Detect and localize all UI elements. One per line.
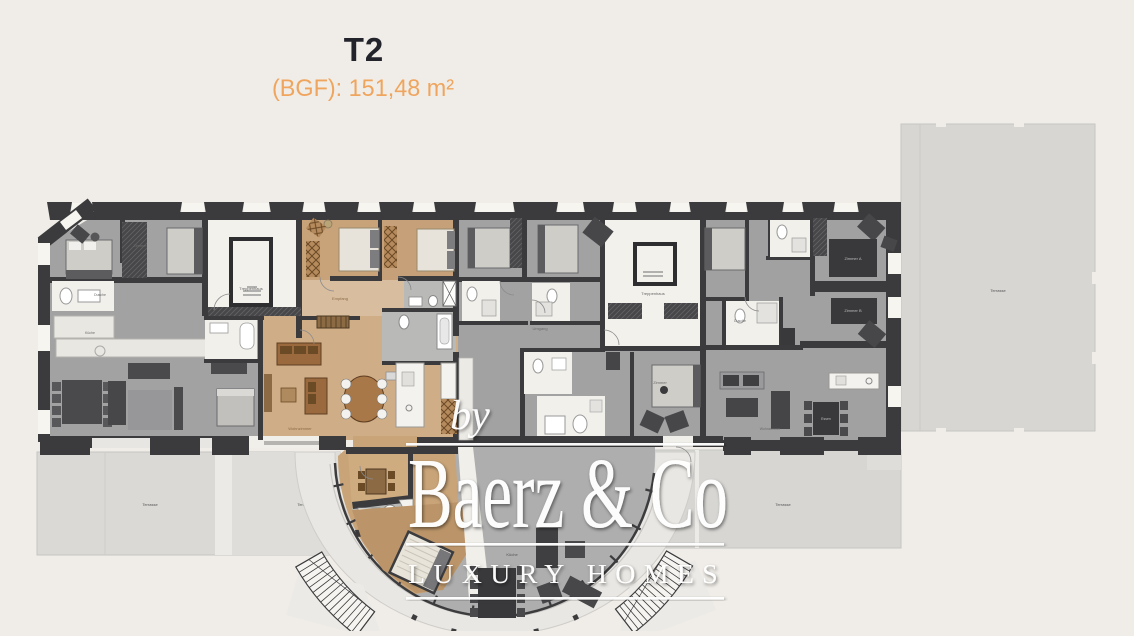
svg-text:Empfang: Empfang: [332, 296, 348, 301]
svg-text:Zimmer B: Zimmer B: [844, 308, 862, 313]
svg-text:Treppenhaus: Treppenhaus: [239, 286, 262, 291]
svg-text:Treppenhaus: Treppenhaus: [641, 291, 664, 296]
svg-text:Küche: Küche: [506, 552, 518, 557]
svg-text:Zimmer: Zimmer: [653, 380, 667, 385]
svg-text:Wohnzimmer: Wohnzimmer: [288, 426, 312, 431]
svg-text:Wohnzimmer: Wohnzimmer: [760, 427, 781, 431]
svg-text:Küche: Küche: [85, 331, 95, 335]
svg-text:Essen: Essen: [821, 417, 831, 421]
svg-text:Terrasse: Terrasse: [775, 502, 791, 507]
svg-text:T2: T2: [344, 31, 385, 68]
svg-text:LUXURY HOMES: LUXURY HOMES: [408, 559, 726, 589]
svg-text:by: by: [450, 393, 490, 439]
svg-text:Terrasse: Terrasse: [990, 288, 1006, 293]
svg-text:Dusche: Dusche: [94, 293, 106, 297]
svg-text:Umgang: Umgang: [532, 326, 547, 331]
svg-text:Terrasse: Terrasse: [142, 502, 158, 507]
svg-text:Zimmer A: Zimmer A: [844, 256, 861, 261]
svg-text:Baerz & Co: Baerz & Co: [408, 437, 728, 549]
svg-text:Dusche: Dusche: [734, 319, 746, 323]
svg-text:(BGF): 151,48 m²: (BGF): 151,48 m²: [272, 75, 454, 102]
svg-text:Zimmer: Zimmer: [133, 243, 147, 248]
